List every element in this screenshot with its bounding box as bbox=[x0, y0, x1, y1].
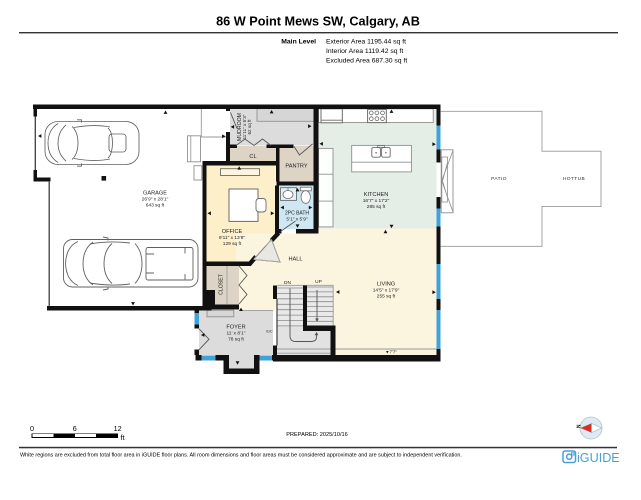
svg-text:LIVING: LIVING bbox=[377, 282, 395, 288]
svg-text:78 sq ft: 78 sq ft bbox=[228, 336, 244, 342]
svg-text:GARAGE: GARAGE bbox=[143, 191, 167, 197]
svg-text:26’9" x 28’1": 26’9" x 28’1" bbox=[142, 196, 169, 202]
svg-text:OFFICE: OFFICE bbox=[222, 229, 243, 235]
svg-text:5’1" x 5’9": 5’1" x 5’9" bbox=[286, 217, 308, 223]
svg-text:HOTTUB: HOTTUB bbox=[563, 176, 585, 182]
svg-text:UP: UP bbox=[315, 279, 322, 285]
svg-text:14’5" x 17’9": 14’5" x 17’9" bbox=[373, 287, 400, 293]
svg-text:PANTRY: PANTRY bbox=[285, 164, 307, 170]
svg-text:2PC BATH: 2PC BATH bbox=[285, 211, 309, 217]
svg-text:6: 6 bbox=[73, 424, 77, 433]
svg-text:FOYER: FOYER bbox=[226, 325, 245, 331]
svg-text:E/C: E/C bbox=[266, 330, 273, 334]
svg-text:iGUIDE: iGUIDE bbox=[577, 451, 620, 465]
svg-text:643 sq ft: 643 sq ft bbox=[146, 202, 165, 208]
svg-text:Main Level: Main Level bbox=[281, 38, 316, 45]
svg-text:Exterior Area 1195.44 sq ft: Exterior Area 1195.44 sq ft bbox=[326, 38, 406, 45]
svg-text:129 sq ft: 129 sq ft bbox=[223, 241, 242, 247]
svg-text:CLOSET: CLOSET bbox=[219, 273, 225, 295]
svg-text:DN: DN bbox=[284, 280, 291, 286]
svg-text:White regions are excluded fro: White regions are excluded from total fl… bbox=[20, 453, 462, 459]
svg-text:▼7’7": ▼7’7" bbox=[385, 350, 397, 355]
svg-text:KITCHEN: KITCHEN bbox=[364, 192, 389, 198]
svg-text:CL: CL bbox=[249, 154, 256, 160]
svg-text:HALL: HALL bbox=[289, 257, 303, 263]
svg-text:285 sq ft: 285 sq ft bbox=[367, 204, 386, 210]
svg-text:PATIO: PATIO bbox=[491, 176, 507, 182]
svg-text:N: N bbox=[574, 424, 580, 428]
svg-text:255 sq ft: 255 sq ft bbox=[377, 293, 396, 299]
svg-text:0: 0 bbox=[30, 424, 34, 433]
svg-text:9’11" x 13’8": 9’11" x 13’8" bbox=[219, 235, 246, 241]
svg-text:Excluded Area 687.30 sq ft: Excluded Area 687.30 sq ft bbox=[326, 58, 407, 65]
svg-text:86 W Point Mews SW, Calgary, A: 86 W Point Mews SW, Calgary, AB bbox=[216, 15, 420, 29]
svg-text:12: 12 bbox=[114, 424, 122, 433]
svg-text:Interior Area 1119.42 sq ft: Interior Area 1119.42 sq ft bbox=[326, 48, 403, 55]
svg-text:62 sq ft: 62 sq ft bbox=[247, 119, 252, 135]
svg-text:ft: ft bbox=[121, 433, 125, 442]
svg-text:PREPARED: 2025/10/16: PREPARED: 2025/10/16 bbox=[286, 432, 347, 438]
svg-text:16’7" x 17’2": 16’7" x 17’2" bbox=[363, 198, 390, 204]
svg-text:11’ x 8’1": 11’ x 8’1" bbox=[226, 330, 245, 336]
